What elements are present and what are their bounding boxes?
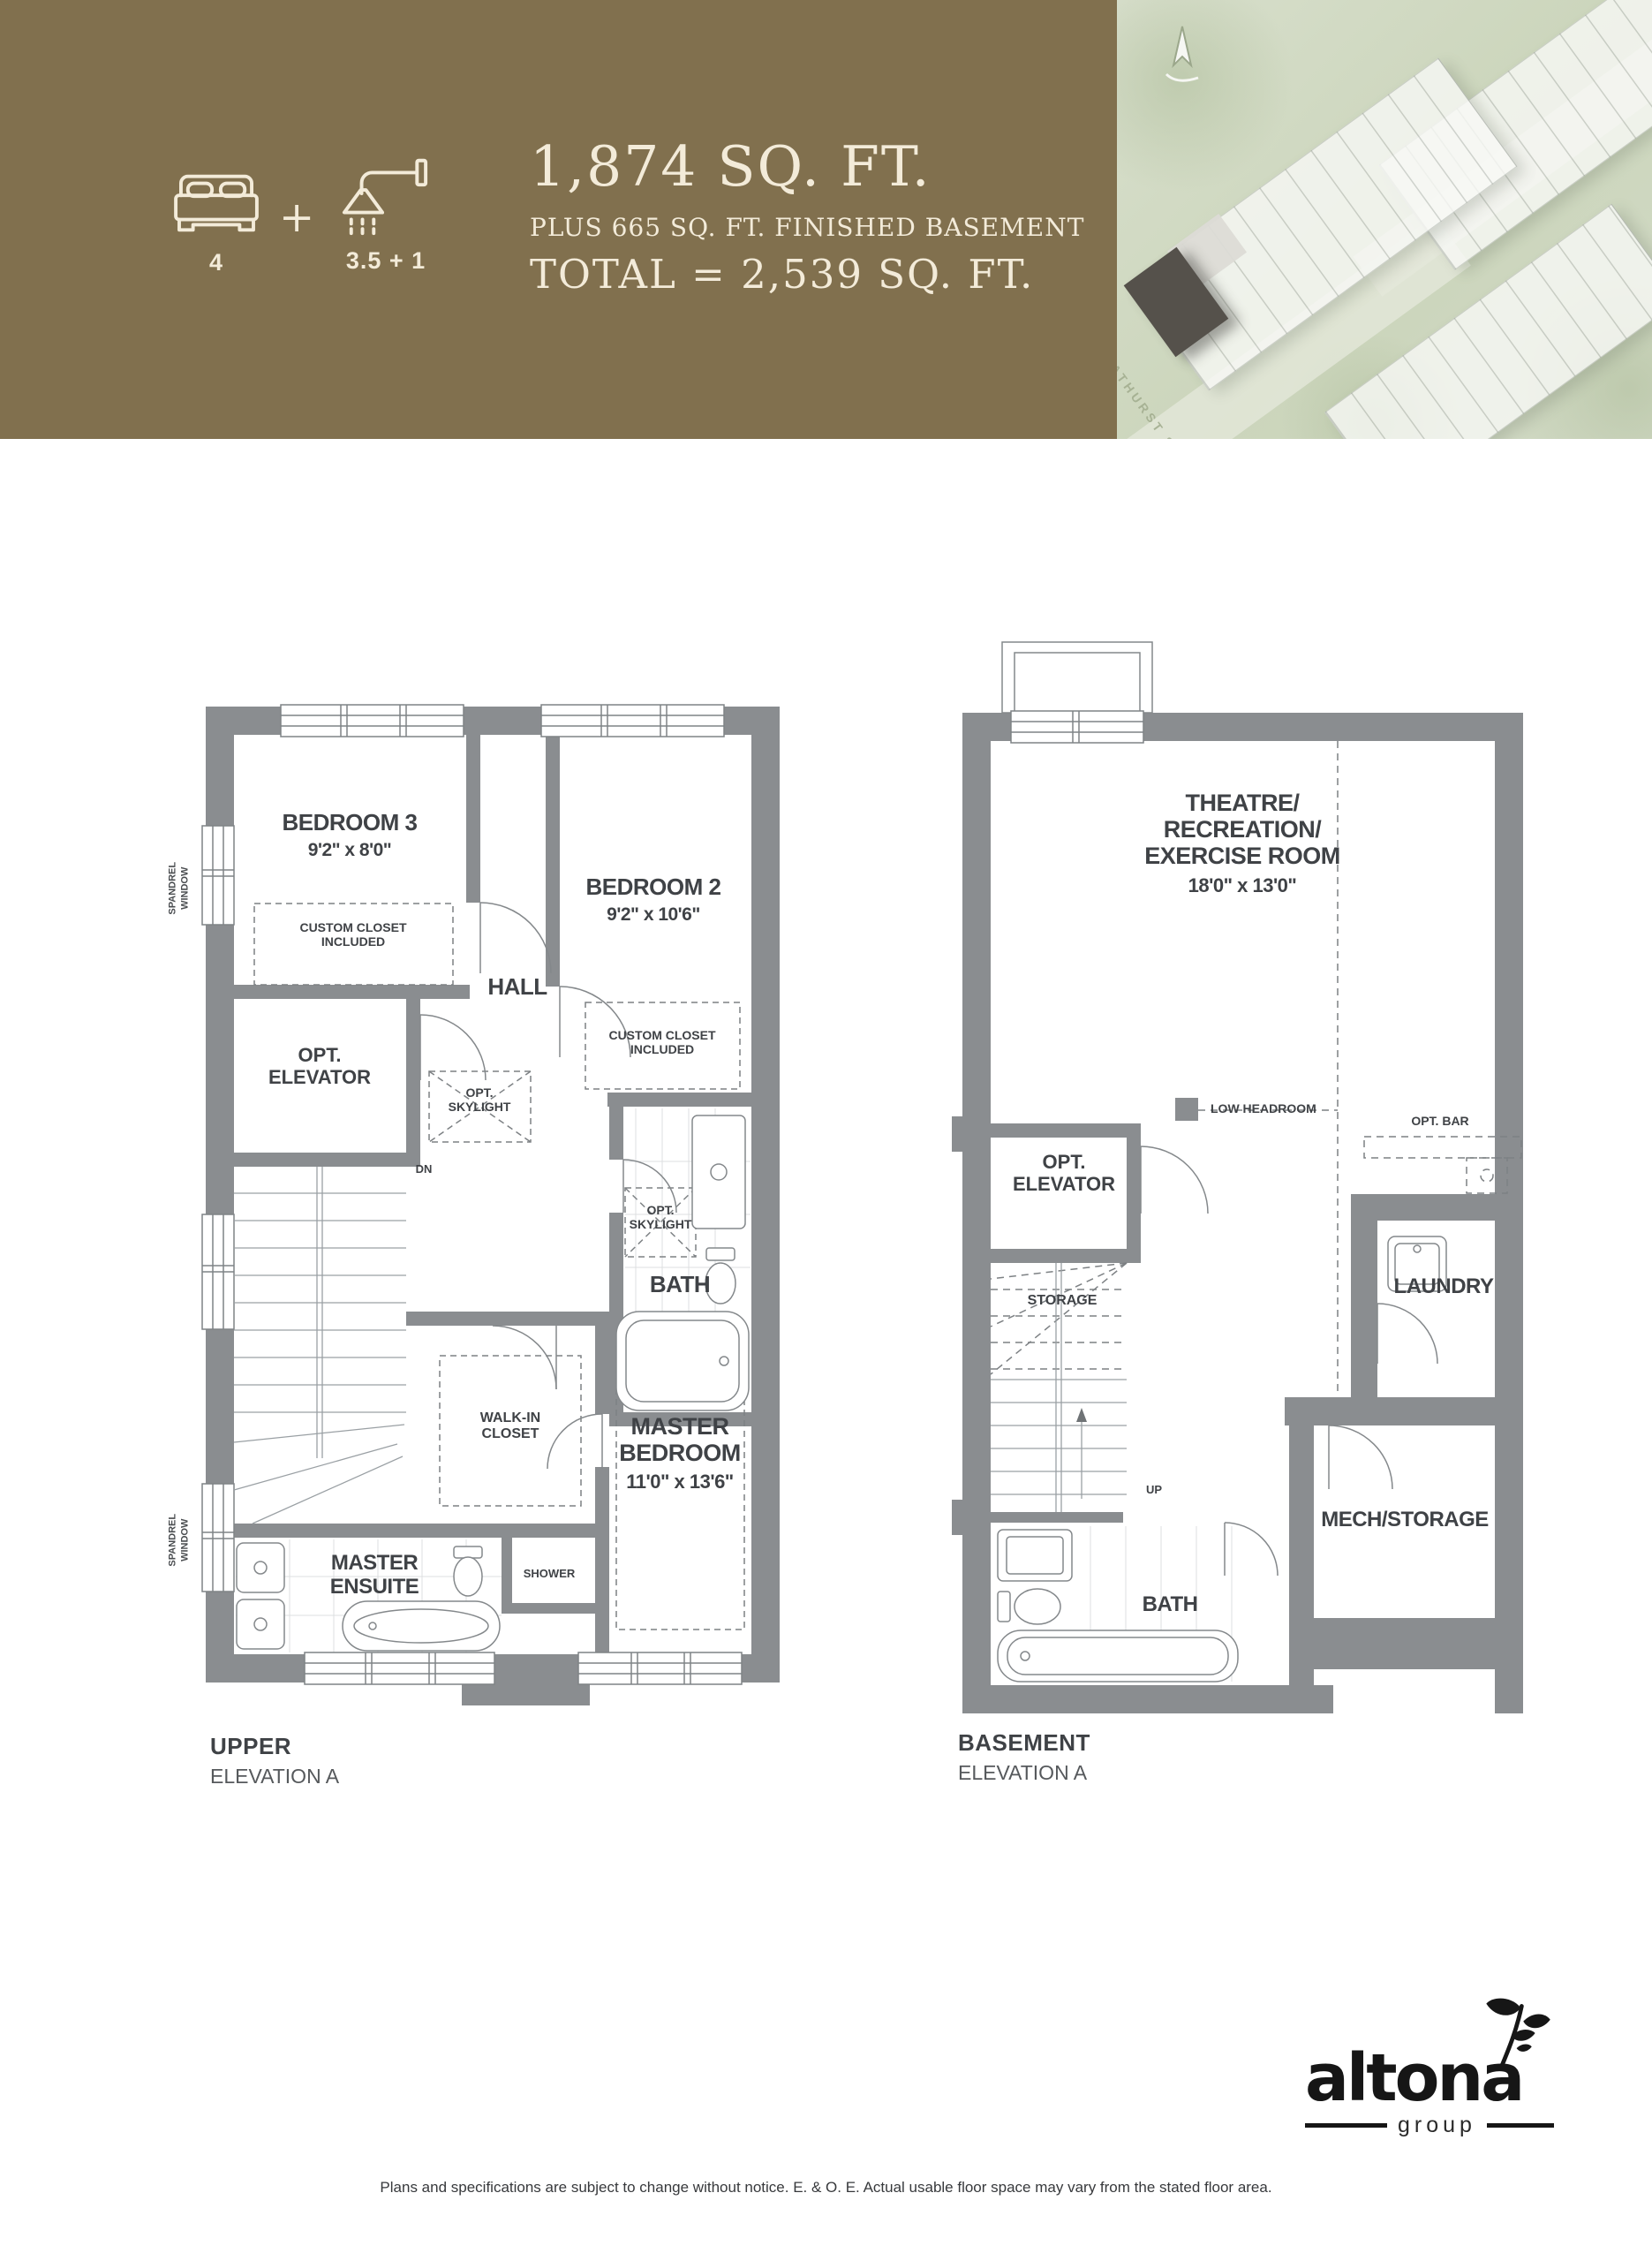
windows [1011, 711, 1143, 743]
logo-tagline: group [1398, 2113, 1476, 2138]
toilet-fixture [998, 1592, 1010, 1622]
aerial-site-render: BATHURST ST [1117, 0, 1652, 439]
label-opt-bar: OPT. BAR [1411, 1115, 1468, 1129]
bedroom-count: 4 [163, 249, 269, 276]
shower-icon [333, 148, 439, 238]
label-custom-closet-1: CUSTOM CLOSET INCLUDED [299, 921, 406, 949]
window-well [1002, 642, 1152, 713]
footer-disclaimer: Plans and specifications are subject to … [0, 2179, 1652, 2197]
brochure-page: 4 + 3.5 + 1 1,874 SQ. FT. PLUS 665 SQ. F… [0, 0, 1652, 2261]
toilet-fixture [454, 1546, 482, 1558]
bed-icon [169, 166, 264, 240]
label-hall: HALL [487, 974, 547, 1000]
up-arrow [1076, 1408, 1087, 1422]
page-subtitle: PLUS 665 SQ. FT. FINISHED BASEMENT [530, 213, 1084, 242]
page-total-area: TOTAL = 2,539 SQ. FT. [530, 251, 1084, 298]
label-master-ensuite: MASTER ENSUITE [330, 1552, 419, 1599]
label-opt-elevator: OPT. ELEVATOR [268, 1045, 371, 1088]
label-storage: STORAGE [1028, 1293, 1098, 1309]
label-opt-skylight-bath: OPT. SKYLIGHT [630, 1204, 692, 1231]
label-spandrel-window-1: SPANDREL WINDOW [167, 836, 192, 941]
toilet-fixture [706, 1248, 735, 1260]
bathroom-count-stat: 3.5 + 1 [328, 148, 443, 275]
label-dn: DN [416, 1163, 433, 1176]
logo-bar-left [1305, 2123, 1387, 2128]
brand-logo: altona group [1305, 2045, 1554, 2138]
label-walk-in-closet: WALK-IN CLOSET [480, 1410, 540, 1442]
leaf-icon [1467, 1996, 1552, 2068]
page-title: 1,874 SQ. FT. [530, 134, 1084, 199]
north-arrow-icon [1154, 19, 1211, 95]
stairs-down [234, 1167, 406, 1524]
dashed-features [254, 904, 744, 1630]
basement-floor-plan: THEATRE/ RECREATION/ EXERCISE ROOM 18'0"… [949, 629, 1550, 1786]
label-master-bedroom: MASTER BEDROOM 11'0" x 13'6" [619, 1413, 741, 1493]
upper-plan-caption: UPPER ELEVATION A [210, 1733, 339, 1788]
label-custom-closet-2: CUSTOM CLOSET INCLUDED [608, 1029, 715, 1056]
bedroom-count-stat: 4 [163, 166, 269, 276]
basement-plan-caption: BASEMENT ELEVATION A [958, 1729, 1090, 1785]
room-label-theatre: THEATRE/ RECREATION/ EXERCISE ROOM 18'0"… [1144, 790, 1340, 896]
bathroom-count: 3.5 + 1 [328, 247, 443, 275]
label-opt-skylight-hall: OPT. SKYLIGHT [449, 1086, 511, 1114]
logo-tagline-row: group [1305, 2113, 1554, 2138]
label-bath: BATH [1143, 1593, 1198, 1617]
label-spandrel-window-2: SPANDREL WINDOW [167, 1487, 192, 1593]
logo-bar-right [1487, 2123, 1554, 2128]
label-bath: BATH [650, 1272, 710, 1297]
room-label-bedroom2: BEDROOM 2 9'2" x 10'6" [586, 874, 721, 926]
label-mech-storage: MECH/STORAGE [1321, 1509, 1489, 1532]
upper-floor-plan: BEDROOM 3 9'2" x 8'0" BEDROOM 2 9'2" x 1… [201, 693, 784, 1797]
label-opt-elevator: OPT. ELEVATOR [1013, 1152, 1115, 1195]
label-shower: SHOWER [524, 1568, 576, 1581]
plus-sign: + [279, 193, 314, 242]
label-laundry: LAUNDRY [1394, 1275, 1494, 1299]
logo-wordmark: altona [1305, 2045, 1554, 2111]
title-block: 1,874 SQ. FT. PLUS 665 SQ. FT. FINISHED … [530, 134, 1084, 298]
room-label-bedroom3: BEDROOM 3 9'2" x 8'0" [283, 810, 418, 861]
label-up: UP [1146, 1484, 1162, 1497]
label-low-headroom: LOW HEADROOM [1211, 1102, 1316, 1116]
bath-fixtures [237, 1115, 749, 1651]
